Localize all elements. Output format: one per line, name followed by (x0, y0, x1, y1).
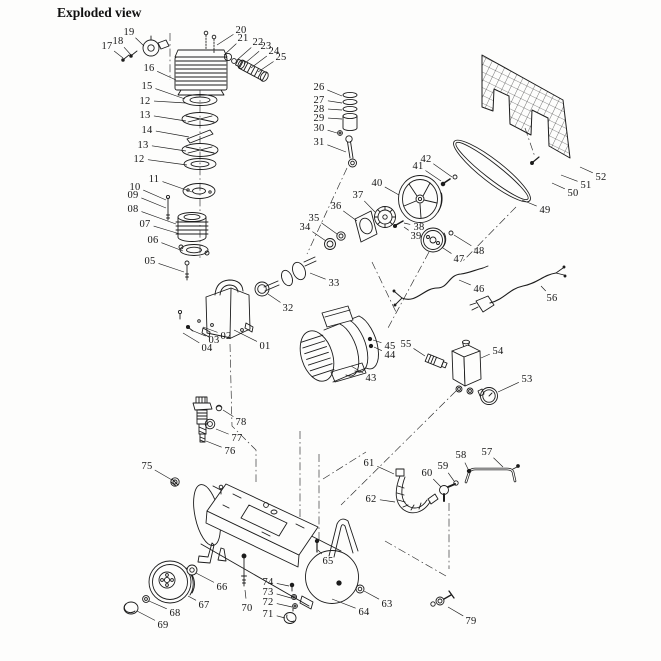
tank-leg (198, 543, 226, 563)
part-number-label: 26 (314, 82, 325, 93)
leader-line (328, 101, 342, 103)
leader-line (268, 294, 281, 302)
part-number-label: 33 (329, 278, 340, 289)
part-number-label: 08 (128, 204, 139, 215)
pulley-washer (449, 231, 453, 235)
leader-line (312, 232, 326, 241)
leader-line (155, 470, 172, 480)
part-number-label: 15 (142, 81, 153, 92)
piston (343, 113, 357, 130)
part-number-label: 16 (144, 63, 155, 74)
rubber-foot (284, 583, 297, 623)
leader-line (321, 223, 337, 234)
guard-screw (531, 157, 540, 165)
part-number-label: 58 (456, 450, 467, 461)
part-number-label: 14 (142, 125, 153, 136)
part-number-label: 55 (401, 339, 412, 350)
leader-line (561, 175, 578, 181)
part-number-label: 74 (263, 577, 274, 588)
leader-line (245, 590, 246, 599)
leader-line (327, 145, 346, 152)
oil-seal (325, 239, 336, 250)
part-number-label: 40 (372, 178, 383, 189)
flywheel-bolt (441, 175, 457, 186)
belt-guard (482, 55, 570, 158)
part-number-label: 25 (276, 52, 287, 63)
cylinder-stud (166, 195, 169, 220)
leader-line (552, 183, 565, 189)
leader-line (448, 607, 463, 616)
pipe-plug (171, 478, 179, 486)
discharge-pipe (466, 465, 519, 482)
hub-cap (124, 602, 138, 614)
crankcase-bolts (178, 310, 200, 331)
leader-line (385, 187, 399, 195)
part-number-label: 49 (540, 205, 551, 216)
part-number-label: 30 (314, 123, 325, 134)
leader-line (448, 473, 454, 481)
part-number-label: 54 (493, 346, 504, 357)
base-gasket (179, 245, 209, 256)
leader-line (433, 164, 452, 177)
part-number-label: 11 (149, 174, 160, 185)
wheel-nut (187, 565, 197, 575)
part-number-label: 12 (140, 96, 151, 107)
part-number-label: 04 (202, 343, 213, 354)
leader-line (154, 101, 186, 103)
part-number-label: 77 (232, 433, 243, 444)
part-number-label: 36 (331, 201, 342, 212)
leader-line (377, 466, 394, 474)
leader-line (277, 583, 289, 586)
leader-line (141, 198, 166, 208)
leader-line (364, 201, 375, 212)
part-number-label: 13 (138, 140, 149, 151)
part-number-label: 65 (323, 556, 334, 567)
leader-line (152, 146, 186, 151)
cover-gasket (355, 211, 377, 242)
leader-line (277, 604, 292, 607)
plate-flange (183, 184, 215, 199)
leader-line (135, 38, 144, 46)
leader-line (454, 235, 471, 246)
part-number-label: 18 (113, 36, 124, 47)
valve-cap-nut (216, 405, 222, 411)
leader-line (234, 330, 257, 341)
tank-foot-bracket (300, 596, 313, 609)
part-number-label: 13 (140, 110, 151, 121)
leader-line (459, 280, 471, 285)
leader-line (154, 116, 186, 121)
part-number-label: 39 (411, 231, 422, 242)
leader-line (328, 118, 342, 119)
part-number-label: 48 (474, 246, 485, 257)
part-number-label: 68 (170, 608, 181, 619)
part-number-label: 47 (454, 254, 465, 265)
leader-line (159, 263, 184, 272)
exploded-view-page: Exploded view (0, 0, 661, 661)
leader-line (327, 90, 342, 96)
leader-line (493, 458, 503, 467)
part-number-label: 45 (385, 341, 396, 352)
part-number-label: 12 (134, 154, 145, 165)
leader-line (161, 243, 183, 251)
part-number-label: 02 (221, 331, 232, 342)
flywheel (399, 176, 443, 223)
part-number-label: 19 (124, 27, 135, 38)
leader-line (124, 47, 131, 55)
leader-line (224, 44, 236, 55)
leader-line (206, 441, 222, 447)
safety-valve (193, 397, 215, 442)
leader-line (191, 330, 206, 336)
leader-line (343, 211, 357, 221)
cylinder (176, 213, 208, 242)
drain-plug (356, 585, 364, 593)
crankshaft (264, 257, 316, 291)
leader-line (443, 248, 451, 254)
fan-disc (375, 207, 396, 228)
leader-line (244, 51, 259, 64)
part-number-label: 62 (366, 494, 377, 505)
part-number-label: 76 (225, 446, 236, 457)
leader-line (143, 190, 166, 200)
part-number-label: 32 (283, 303, 294, 314)
breather-cap (143, 36, 169, 56)
leader-line (465, 463, 468, 469)
check-valve (425, 354, 447, 369)
leader-line (196, 573, 214, 582)
leader-line (162, 182, 192, 192)
pressure-switch (452, 340, 481, 394)
leader-line (310, 273, 326, 279)
leader-line (380, 500, 395, 502)
leader-line (157, 71, 176, 80)
part-number-label: 21 (238, 33, 249, 44)
cover-screws (122, 51, 137, 61)
exploded-view-diagram: Exploded view (0, 0, 661, 661)
leader-line (328, 109, 342, 110)
part-number-label: 73 (263, 587, 274, 598)
part-number-label: 06 (148, 235, 159, 246)
part-number-label: 75 (142, 461, 153, 472)
motor-pulley (421, 228, 446, 252)
wheel-washer (143, 596, 150, 603)
part-number-label: 46 (474, 284, 485, 295)
part-number-label: 35 (309, 213, 320, 224)
part-number-label: 01 (260, 341, 271, 352)
leader-line (433, 479, 441, 487)
leader-line (183, 333, 199, 343)
part-number-label: 70 (242, 603, 253, 614)
part-number-label: 66 (217, 582, 228, 593)
leader-line (188, 596, 196, 600)
part-number-label: 05 (145, 256, 156, 267)
part-number-label: 79 (466, 616, 477, 627)
part-number-label: 51 (581, 180, 592, 191)
leader-line (328, 130, 337, 133)
part-number-label: 31 (314, 137, 325, 148)
pulley-set-bolt (393, 221, 403, 228)
leader-line (114, 51, 123, 58)
part-number-label: 17 (102, 41, 113, 52)
leader-line (251, 56, 267, 68)
part-number-label: 64 (359, 607, 370, 618)
part-number-label: 67 (199, 600, 210, 611)
part-number-label: 37 (353, 190, 364, 201)
part-number-label: 53 (522, 374, 533, 385)
part-number-label: 60 (422, 468, 433, 479)
part-number-label: 63 (382, 599, 393, 610)
leader-line (498, 382, 519, 392)
leader-line (217, 34, 233, 45)
leader-line (258, 62, 274, 72)
part-number-label: 10 (130, 182, 141, 193)
leader-line (364, 591, 379, 599)
part-number-label: 50 (568, 188, 579, 199)
leader-line (541, 286, 546, 291)
part-number-label: 43 (366, 373, 377, 384)
part-number-label: 42 (421, 154, 432, 165)
pressure-gauge (478, 388, 498, 405)
leader-line (156, 131, 189, 137)
bearing (255, 282, 269, 296)
elbow-fitting (440, 481, 459, 501)
piston-rings (343, 92, 357, 111)
drain-valve (431, 591, 454, 606)
leader-line (216, 429, 229, 434)
leader-line (481, 354, 490, 358)
leader-line (137, 611, 155, 620)
leader-line (414, 348, 425, 356)
leader-line (404, 227, 409, 230)
part-number-label: 59 (438, 461, 449, 472)
page-title: Exploded view (57, 5, 142, 20)
leader-line (237, 47, 251, 60)
leader-line (580, 167, 593, 173)
part-number-label: 56 (547, 293, 558, 304)
wrist-pin (338, 131, 343, 136)
air-filter (235, 58, 270, 83)
part-number-label: 52 (596, 172, 607, 183)
case-bolt (185, 261, 189, 280)
part-number-label: 07 (140, 219, 151, 230)
part-number-label: 72 (263, 597, 274, 608)
part-number-label: 69 (158, 620, 169, 631)
leader-line (404, 223, 410, 224)
connecting-rod (346, 136, 357, 167)
part-number-label: 61 (364, 458, 375, 469)
shaft-nut (337, 232, 345, 240)
v-belt (447, 133, 536, 209)
leader-line (148, 160, 187, 165)
part-number-label: 71 (263, 609, 274, 620)
part-number-label: 57 (482, 447, 493, 458)
part-number-label: 78 (236, 417, 247, 428)
cylinder-head (175, 50, 227, 95)
tank-platform (206, 484, 318, 567)
